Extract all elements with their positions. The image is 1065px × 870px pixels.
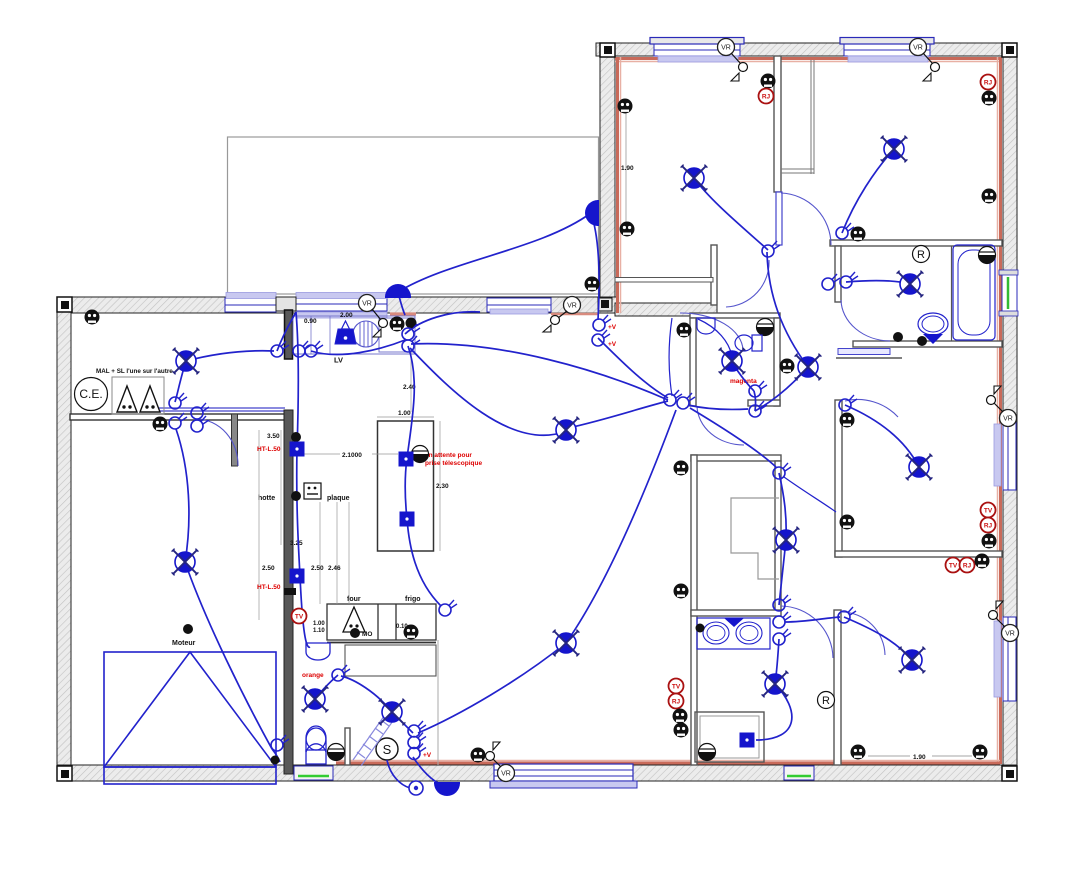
svg-text:Moteur: Moteur <box>172 640 196 647</box>
svg-text:S: S <box>383 742 392 757</box>
svg-text:1.00: 1.00 <box>398 410 411 417</box>
svg-text:3.25: 3.25 <box>290 540 303 547</box>
svg-text:+V: +V <box>608 324 617 331</box>
svg-text:1.10: 1.10 <box>313 628 325 634</box>
svg-text:2.30: 2.30 <box>436 483 449 490</box>
svg-text:HT-L.50: HT-L.50 <box>257 446 281 453</box>
svg-text:1.00: 1.00 <box>313 621 325 627</box>
svg-text:C.E.: C.E. <box>79 387 102 401</box>
svg-text:1.90: 1.90 <box>913 754 926 761</box>
svg-text:MO: MO <box>362 631 372 638</box>
svg-text:+V: +V <box>423 752 432 759</box>
svg-text:3.50: 3.50 <box>267 433 280 440</box>
svg-text:1.90: 1.90 <box>621 165 634 172</box>
svg-text:hotte: hotte <box>258 495 275 502</box>
svg-text:en attente pour: en attente pour <box>425 452 472 459</box>
svg-text:orange: orange <box>302 672 324 679</box>
svg-text:frigo: frigo <box>405 596 421 603</box>
svg-text:2.00: 2.00 <box>340 312 353 319</box>
svg-text:HT-L.50: HT-L.50 <box>257 584 281 591</box>
svg-text:2.50: 2.50 <box>311 565 324 572</box>
svg-text:2.1000: 2.1000 <box>342 452 362 459</box>
svg-text:LV: LV <box>334 356 343 365</box>
svg-text:2.46: 2.46 <box>328 565 341 572</box>
svg-text:0.90: 0.90 <box>304 318 317 325</box>
svg-text:MAL + SL l'une sur l'autre: MAL + SL l'une sur l'autre <box>96 368 173 375</box>
svg-text:prise télescopique: prise télescopique <box>425 460 482 467</box>
svg-text:plaque: plaque <box>327 495 350 502</box>
svg-text:+V: +V <box>608 341 617 348</box>
svg-text:2.50: 2.50 <box>262 565 275 572</box>
